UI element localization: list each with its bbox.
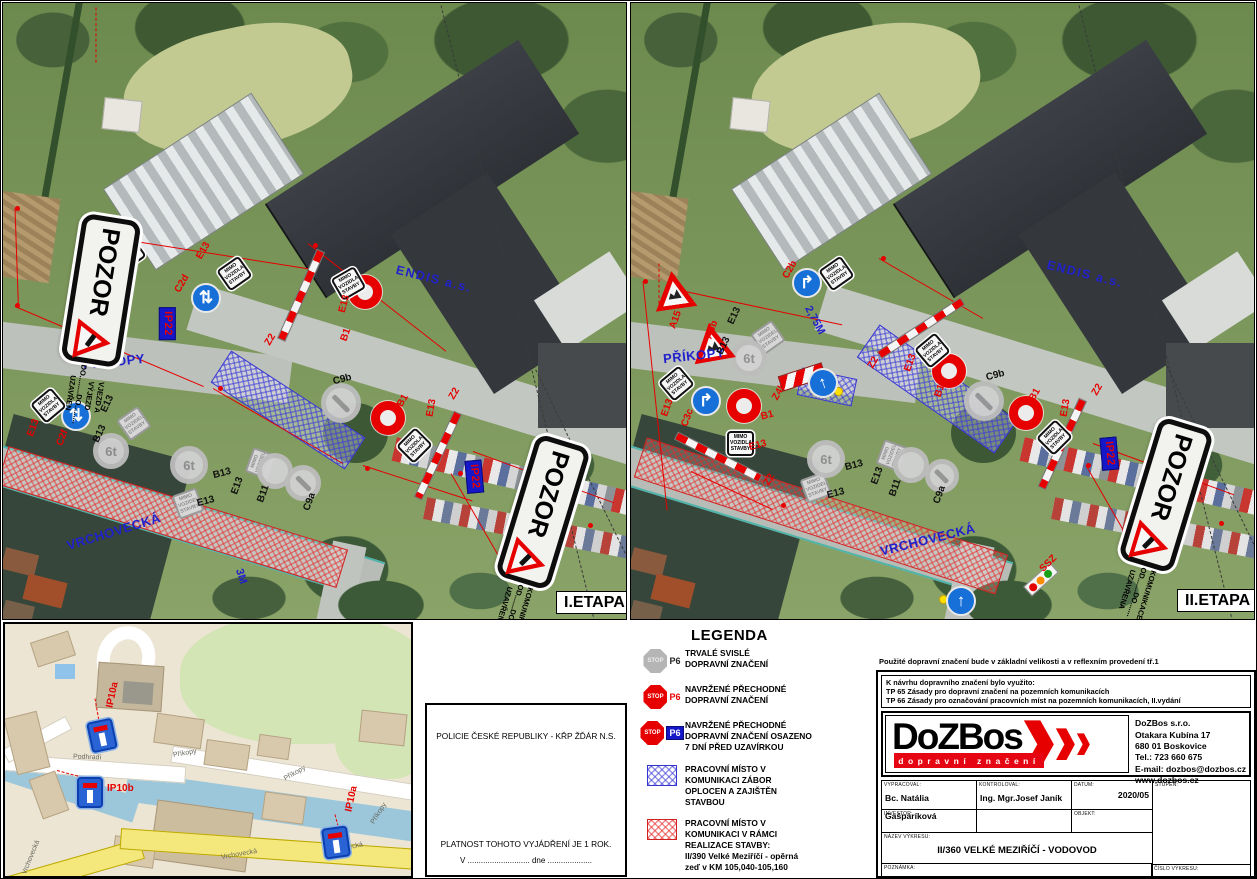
field-kontroloval: KONTROLOVAL: Ing. Mgr.Josef Janík: [976, 780, 1072, 810]
building-block: [153, 713, 205, 749]
ip22-sign-label: IP22: [1099, 437, 1119, 471]
building-block: [257, 734, 292, 760]
marker-dot: [1219, 521, 1224, 526]
street-name-label: Podhradí: [73, 754, 102, 762]
police-signature-line: V ............................ dne .....…: [427, 856, 625, 865]
sign-code-label: P6: [666, 726, 683, 740]
no-entry-sign: [727, 389, 761, 423]
company-line: DoZBos s.r.o.: [1135, 718, 1247, 729]
field-cislo-vykresu: ČÍSLO VÝKRESU: 1: [1151, 864, 1251, 879]
existing-traffic-sign: [321, 383, 361, 423]
legend-item: PRACOVNÍ MÍSTO V KOMUNIKACI ZÁBOR OPLOCE…: [639, 764, 877, 808]
ip22-sign-label: IP22: [464, 460, 484, 494]
building-block: [30, 630, 76, 667]
traffic-plan-sheet: POZORVJEZD A VÝJEZD DO.........DO.......…: [0, 0, 1257, 879]
tp-line: TP 65 Zásady pro dopravní značení na poz…: [886, 687, 1246, 696]
field-nazev-vykresu: NÁZEV VÝKRESU: II/360 VELKÉ MEZIŘÍČÍ - V…: [881, 832, 1153, 864]
no-entry-sign: [1009, 396, 1043, 430]
dead-end-sign-ip10: [86, 718, 118, 754]
building-block: [261, 791, 306, 825]
marker-dot: [643, 279, 648, 284]
sign-code-label: P6: [669, 656, 680, 666]
title-table: VYPRACOVAL: Bc. Natália Gašparíková KONT…: [881, 780, 1251, 879]
legend-item-strong-text: II/390 Velké Meziříčí - opěrná zeď v KM …: [685, 851, 798, 873]
existing-traffic-sign: [893, 447, 929, 483]
stage-label: II.ETAPA: [1177, 589, 1255, 612]
legend-item: STOPP6NAVRŽENÉ PŘECHODNÉ DOPRAVNÍ ZNAČEN…: [639, 720, 877, 753]
overview-map: PodhradíPříkopyPříkopyPříkopyVrchoveckáV…: [3, 622, 413, 878]
legend-title: LEGENDA: [691, 627, 877, 644]
legend: LEGENDA STOPP6TRVALÉ SVISLÉ DOPRAVNÍ ZNA…: [631, 621, 877, 879]
stop-sign-icon: STOP: [643, 649, 667, 673]
brand-name: DoZBos: [892, 718, 1022, 755]
tp-line: TP 66 Zásady pro označování pracovních m…: [886, 696, 1246, 705]
field-blank: [976, 809, 1072, 833]
existing-traffic-sign: 6t: [731, 340, 767, 376]
building-block: [122, 681, 153, 705]
marker-dot: [1086, 463, 1091, 468]
ip22-sign-label: IP22: [159, 307, 176, 340]
legend-item: STOPP6NAVRŽENÉ PŘECHODNÉ DOPRAVNÍ ZNAČEN…: [639, 684, 877, 709]
police-note-box: POLICIE ČESKÉ REPUBLIKY - KŘP ŽĎÁR N.S. …: [425, 703, 627, 877]
marker-dot: [218, 386, 223, 391]
police-validity: PLATNOST TOHOTO VYJÁDŘENÍ JE 1 ROK.: [427, 839, 625, 849]
tp-standards-box: K návrhu dopravního značení bylo využito…: [881, 675, 1251, 708]
existing-traffic-sign: 6t: [807, 440, 845, 478]
warning-triangle-icon: [505, 536, 551, 585]
company-line: Tel.: 723 660 675: [1135, 752, 1247, 763]
stop-sign-icon: STOP: [643, 685, 667, 709]
police-title: POLICIE ČESKÉ REPUBLIKY - KŘP ŽĎÁR N.S.: [427, 731, 625, 741]
field-objekt: OBJEKT:: [1071, 809, 1153, 833]
title-block: K návrhu dopravního značení bylo využito…: [876, 670, 1256, 878]
leader-line: [96, 8, 97, 63]
stop-sign-icon: STOP: [640, 721, 664, 745]
dark-building-small: [538, 343, 627, 428]
tp-line: K návrhu dopravního značení bylo využito…: [886, 678, 1246, 687]
field-poznamka: POZNÁMKA:: [881, 863, 1153, 879]
marker-dot: [781, 503, 786, 508]
legend-item-text: NAVRŽENÉ PŘECHODNÉ DOPRAVNÍ ZNAČENÍ OSAZ…: [685, 720, 812, 753]
marker-dot: [588, 523, 593, 528]
field-stupen: STUPEŇ:: [1152, 780, 1251, 865]
company-address: DoZBos s.r.o. Otakara Kubína 17 680 01 B…: [1131, 713, 1249, 775]
stage2-map-panel: POZORKOMUNIKACE OD.......DO....... UZAVŘ…: [630, 2, 1255, 620]
sign-code-label: IP10b: [107, 784, 134, 794]
legend-item-text: NAVRŽENÉ PŘECHODNÉ DOPRAVNÍ ZNAČENÍ: [685, 684, 786, 706]
leader-line: [659, 264, 660, 304]
chevron-icon: [1056, 728, 1075, 760]
legend-item-text: PRACOVNÍ MÍSTO V KOMUNIKACI V RÁMCI REAL…: [685, 818, 798, 873]
legend-item-text: TRVALÉ SVISLÉ DOPRAVNÍ ZNAČENÍ: [685, 648, 768, 670]
legend-item: STOPP6TRVALÉ SVISLÉ DOPRAVNÍ ZNAČENÍ: [639, 648, 877, 673]
marker-dot: [881, 256, 886, 261]
marker-dot: [15, 206, 20, 211]
warning-triangle-icon: [1128, 519, 1174, 568]
warning-triangle-icon: [72, 318, 114, 363]
marker-dot: [365, 466, 370, 471]
marker-dot: [15, 303, 20, 308]
field-vypracoval: VYPRACOVAL: Bc. Natália Gašparíková: [881, 780, 977, 810]
company-line: Otakara Kubína 17: [1135, 730, 1247, 741]
field-investor: INVESTOR:: [881, 809, 977, 833]
marker-dot: [458, 471, 463, 476]
reflective-note: Použité dopravní značení bude v základní…: [879, 657, 1159, 666]
legend-item: PRACOVNÍ MÍSTO V KOMUNIKACI V RÁMCI REAL…: [639, 818, 877, 873]
pool: [55, 664, 75, 679]
sign-code-label: P6: [669, 692, 680, 702]
dead-end-sign-ip10: [321, 825, 351, 859]
dark-building-small: [1166, 343, 1255, 428]
shed-building: [729, 97, 770, 133]
mandatory-direction-sign: ⇅: [191, 283, 221, 313]
logo-row: DoZBos dopravní značení DoZBos s.r.o. Ot…: [881, 711, 1251, 777]
shed-building: [101, 97, 142, 133]
blue-hatch-swatch: [647, 765, 677, 786]
red-hatch-swatch: [647, 819, 677, 840]
logo-tagline: dopravní značení: [894, 753, 1044, 768]
existing-traffic-sign: [964, 381, 1004, 421]
building-block: [358, 710, 407, 747]
company-logo: DoZBos dopravní značení: [885, 715, 1129, 773]
company-line: E-mail: dozbos@dozbos.cz: [1135, 764, 1247, 775]
mandatory-direction-sign: ↑: [946, 586, 976, 616]
company-line: 680 01 Boskovice: [1135, 741, 1247, 752]
mandatory-direction-sign: ↱: [792, 268, 822, 298]
marker-dot: [313, 243, 318, 248]
legend-item-text: PRACOVNÍ MÍSTO V KOMUNIKACI ZÁBOR OPLOCE…: [685, 764, 777, 808]
chevron-icon: [1077, 733, 1090, 755]
stage-label: I.ETAPA: [556, 591, 627, 614]
legend-items: STOPP6TRVALÉ SVISLÉ DOPRAVNÍ ZNAČENÍSTOP…: [631, 648, 877, 873]
existing-traffic-sign: 6t: [170, 446, 208, 484]
stage1-map-panel: POZORVJEZD A VÝJEZD DO.........DO.......…: [2, 2, 627, 620]
dead-end-sign-ip10: [77, 777, 103, 808]
field-datum: DATUM: 2020/05: [1071, 780, 1153, 810]
